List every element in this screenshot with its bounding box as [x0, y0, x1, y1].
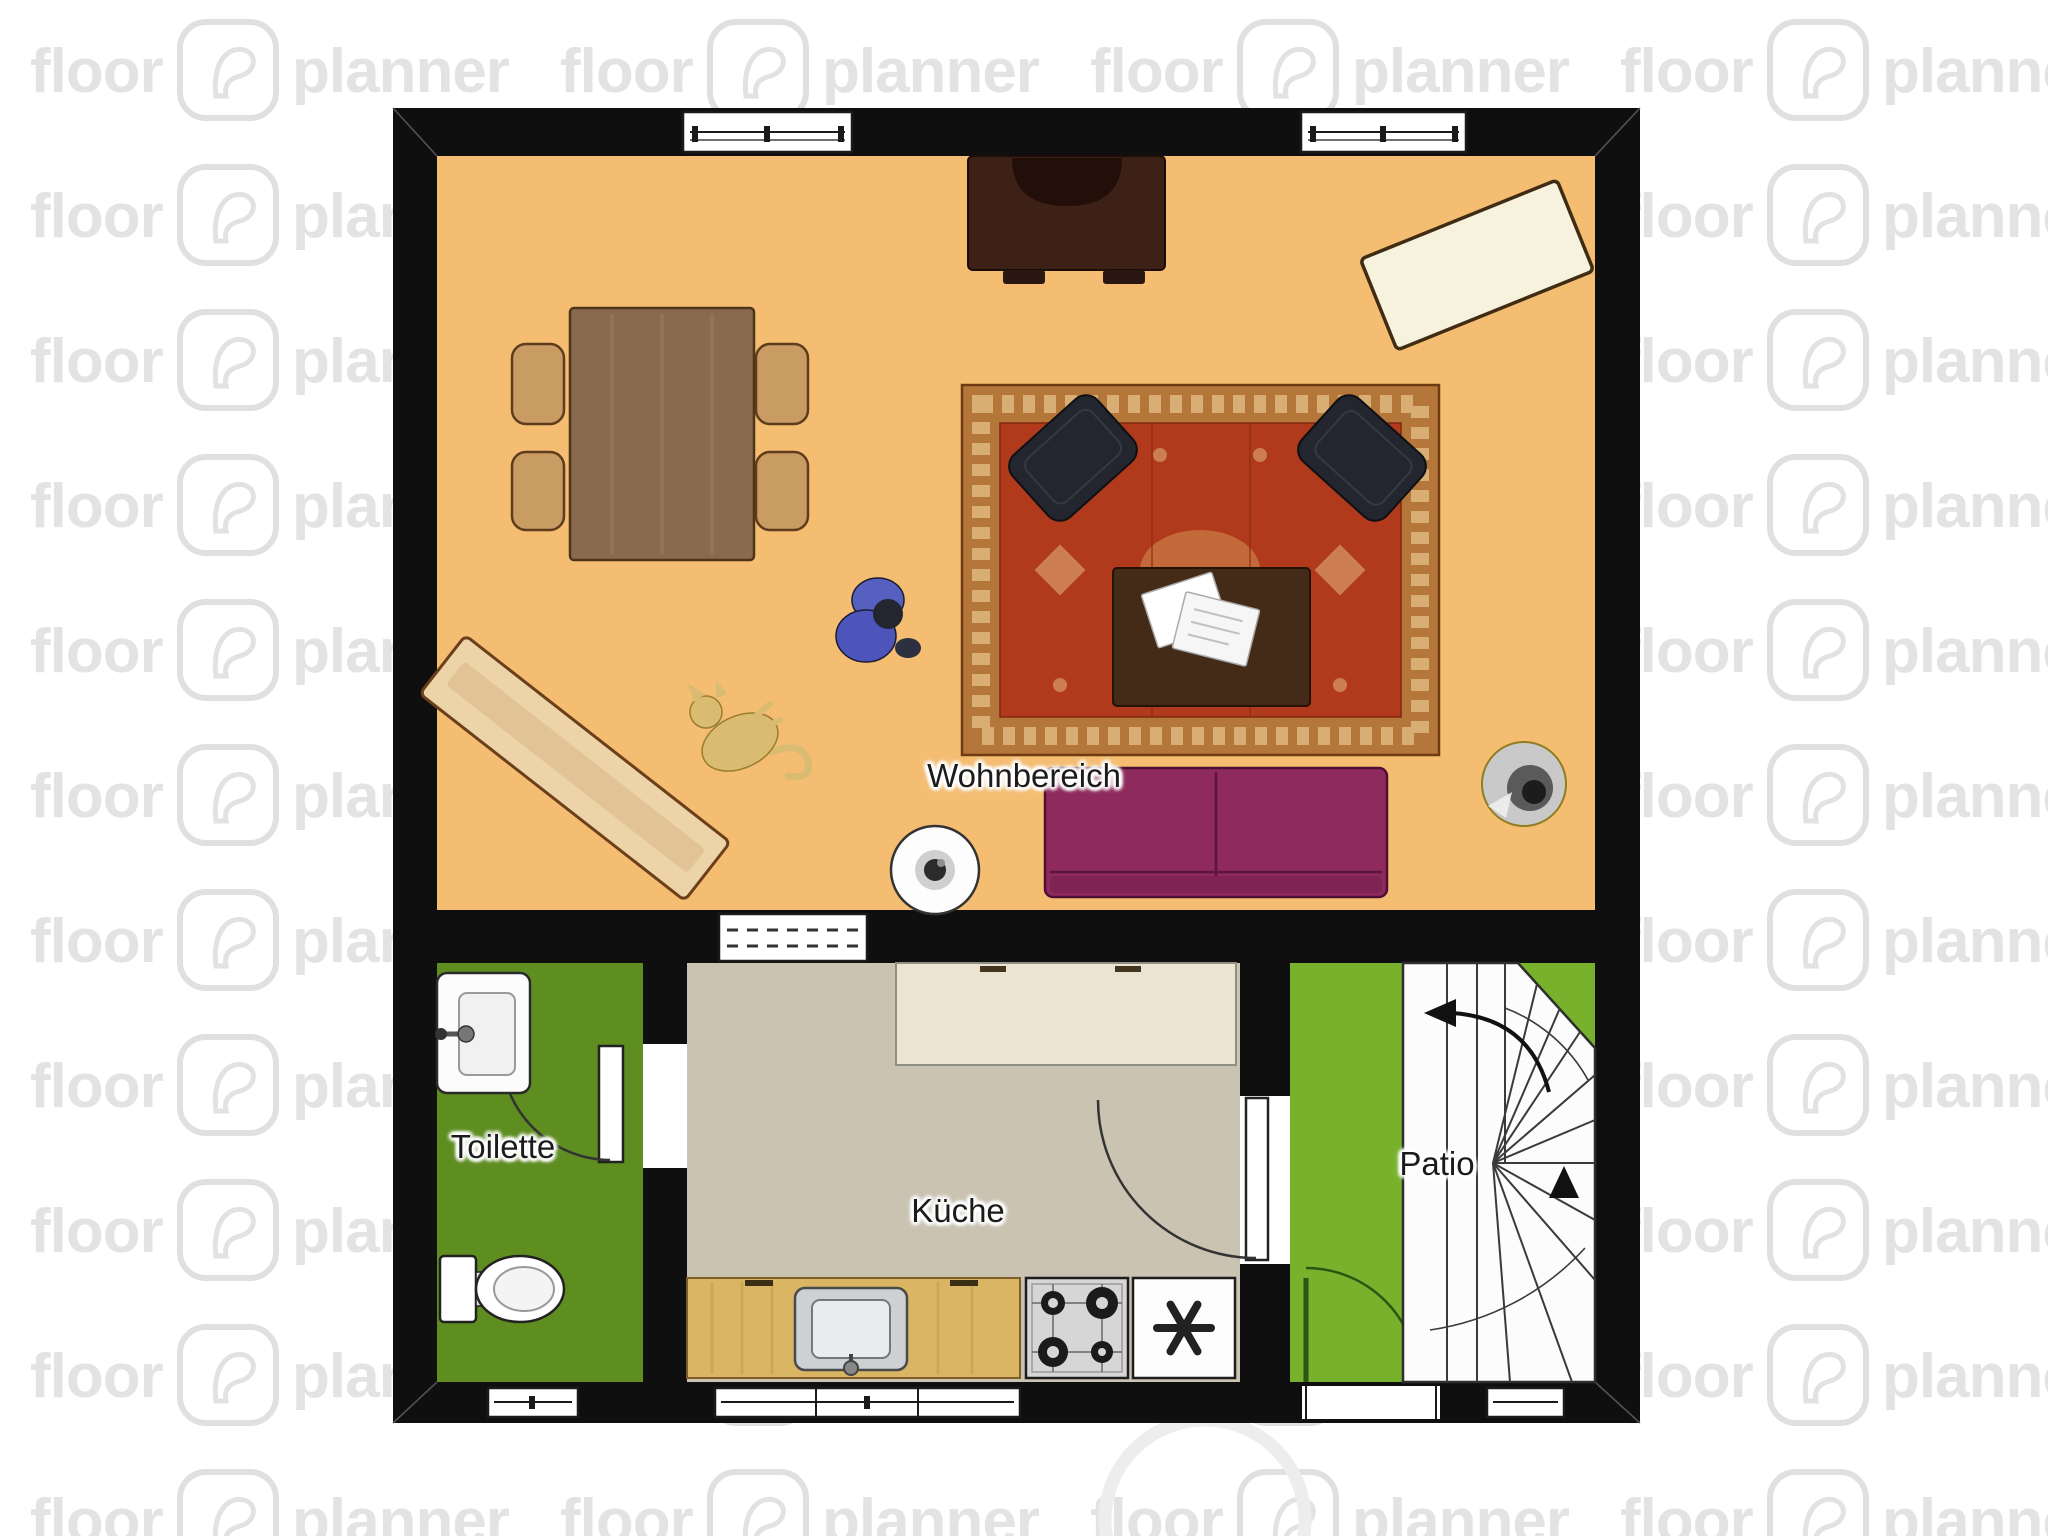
disc-object — [891, 826, 979, 914]
window-top-left — [683, 112, 852, 152]
piano — [968, 156, 1165, 284]
window-toilet-bottom — [488, 1388, 578, 1417]
toilet-fixture — [440, 1256, 564, 1322]
window-passthrough-interior — [719, 914, 867, 961]
room-label-toilet: Toilette — [451, 1128, 556, 1166]
floorplan-page: floor planner — [0, 0, 2048, 1536]
pet-bed — [1482, 742, 1566, 826]
window-patio-bottom — [1487, 1388, 1564, 1417]
coffee-table — [1113, 568, 1310, 706]
stove — [1026, 1278, 1128, 1378]
kitchen-counter-top — [896, 963, 1236, 1065]
window-kitchen-bottom — [715, 1388, 1020, 1417]
faucet-icon — [844, 1361, 858, 1375]
freezer — [1133, 1278, 1235, 1378]
room-label-living: Wohnbereich — [927, 757, 1121, 795]
window-top-right — [1301, 112, 1466, 152]
dining-table — [570, 308, 754, 560]
bathroom-sink — [435, 973, 530, 1093]
room-label-patio: Patio — [1399, 1145, 1474, 1183]
faucet-icon — [435, 1028, 447, 1040]
kitchen-counter-sink — [687, 1278, 1020, 1378]
room-label-kitchen: Küche — [911, 1192, 1005, 1230]
